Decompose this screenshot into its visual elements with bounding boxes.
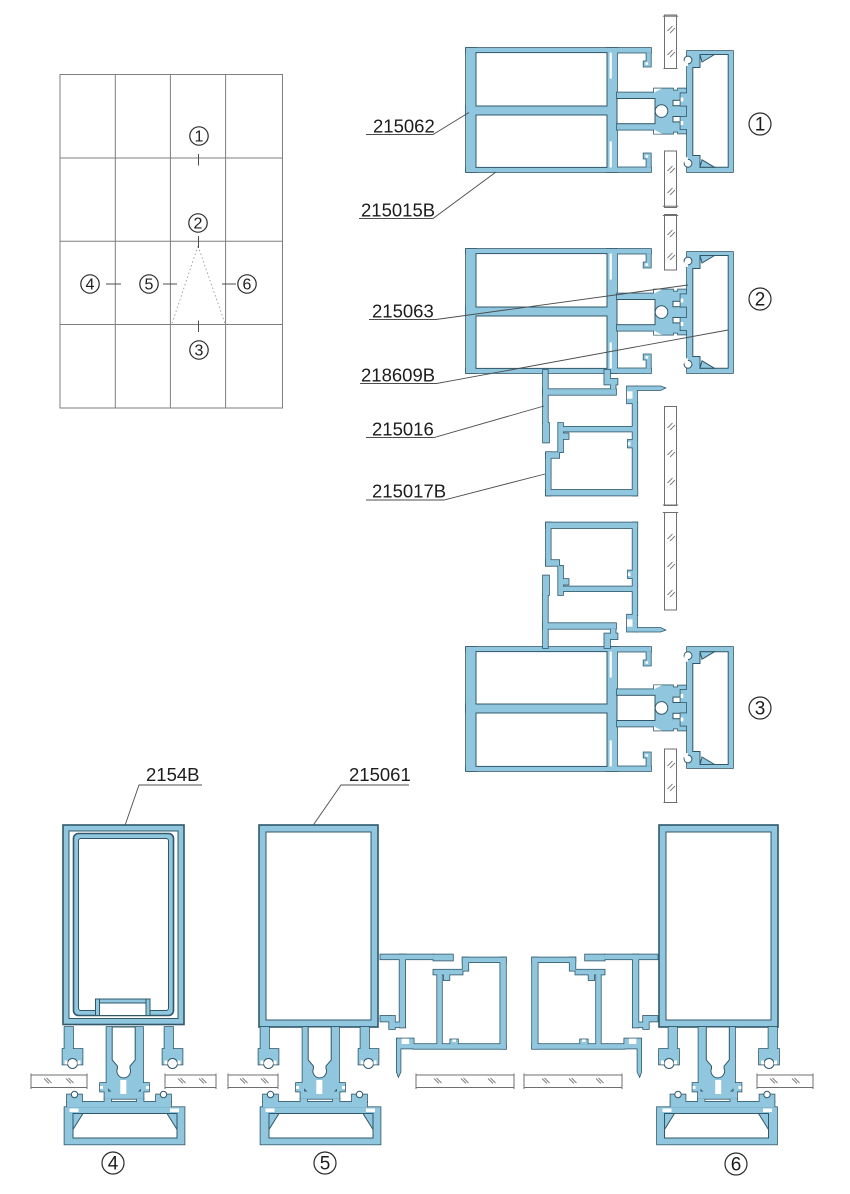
svg-text:3: 3 [755,699,766,720]
svg-text:215061: 215061 [349,764,411,785]
svg-text:4: 4 [108,1154,119,1175]
svg-text:215017B: 215017B [372,481,446,502]
svg-text:218609B: 218609B [361,365,435,386]
svg-text:6: 6 [243,277,252,294]
svg-text:215016: 215016 [372,419,434,440]
svg-text:3: 3 [195,343,204,360]
svg-text:215062: 215062 [373,116,435,137]
svg-text:215015B: 215015B [361,200,435,221]
svg-text:6: 6 [731,1155,742,1176]
svg-text:5: 5 [145,277,154,294]
svg-text:4: 4 [86,277,95,294]
svg-text:2154B: 2154B [146,764,200,785]
svg-text:2: 2 [755,290,766,311]
svg-text:5: 5 [320,1154,331,1175]
svg-text:1: 1 [195,129,204,146]
svg-text:215063: 215063 [372,301,434,322]
svg-text:1: 1 [755,115,766,136]
svg-text:2: 2 [194,216,203,233]
